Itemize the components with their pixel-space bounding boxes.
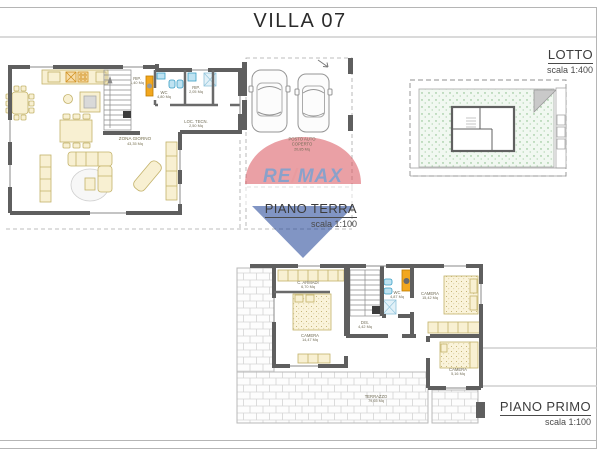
primo-title: PIANO PRIMO — [500, 399, 591, 416]
remax-wordmark: RE/MAX — [240, 166, 366, 188]
terra-title-block: PIANO TERRA scala 1:100 — [240, 200, 357, 229]
lotto-scale: scala 1:400 — [503, 65, 593, 75]
lotto-side-strip — [556, 88, 566, 168]
room-label-loc-tecn: LOC. TECN. 2,50 Mq — [184, 119, 207, 129]
remax-watermark: RE/MAX — [240, 134, 366, 262]
room-label-cabina-armadi: C. ARMADI 6,70 Mq — [297, 280, 318, 290]
room-label-camera-1: CAMERA 14,47 Mq — [301, 333, 319, 343]
terra-title: PIANO TERRA — [265, 201, 357, 218]
lotto-building — [452, 107, 514, 151]
primo-title-block: PIANO PRIMO scala 1:100 — [471, 398, 591, 427]
room-label-rip-1: RIP. 1,40 Mq — [130, 76, 144, 86]
primo-stairs — [350, 270, 380, 316]
primo-scale: scala 1:100 — [471, 417, 591, 427]
room-label-terrazzo: TERRAZZO 79,65 Mq — [365, 394, 388, 404]
floorplan-sheet: RE/MAX VILLA 07 LOTTO scala 1:400 PIANO … — [0, 0, 600, 450]
room-label-camera-2: CAMERA 15,42 Mq — [421, 291, 439, 301]
terra-scale: scala 1:100 — [240, 219, 357, 229]
carport — [242, 58, 353, 132]
room-label-camera-3: CAMERA 5,16 Mq — [449, 367, 467, 377]
car-2 — [295, 74, 332, 132]
car-1 — [249, 70, 290, 132]
side-section-lines — [483, 348, 597, 386]
lotto-road — [410, 168, 566, 176]
room-label-zona-giorno: ZONA GIORNO 43,35 Mq — [119, 136, 151, 146]
remax-balloon-icon — [240, 134, 366, 262]
room-label-disimpegno: DIS. 4,42 Mq — [358, 320, 372, 330]
room-label-wc-terra: WC 4,80 Mq — [157, 90, 171, 100]
lotto-title: LOTTO — [548, 47, 593, 64]
room-label-wc-primo: WC 4,87 Mq — [390, 290, 404, 300]
slope-arrow-icon — [318, 60, 328, 67]
room-label-posto-auto: POSTO AUTO COPERTO 20,85 Mq — [288, 136, 315, 151]
page-title: VILLA 07 — [0, 10, 600, 33]
lotto-title-block: LOTTO scala 1:400 — [503, 46, 593, 75]
lotto-plan — [410, 80, 566, 176]
room-label-rip-2: RIP. 2,05 Mq — [189, 85, 203, 95]
